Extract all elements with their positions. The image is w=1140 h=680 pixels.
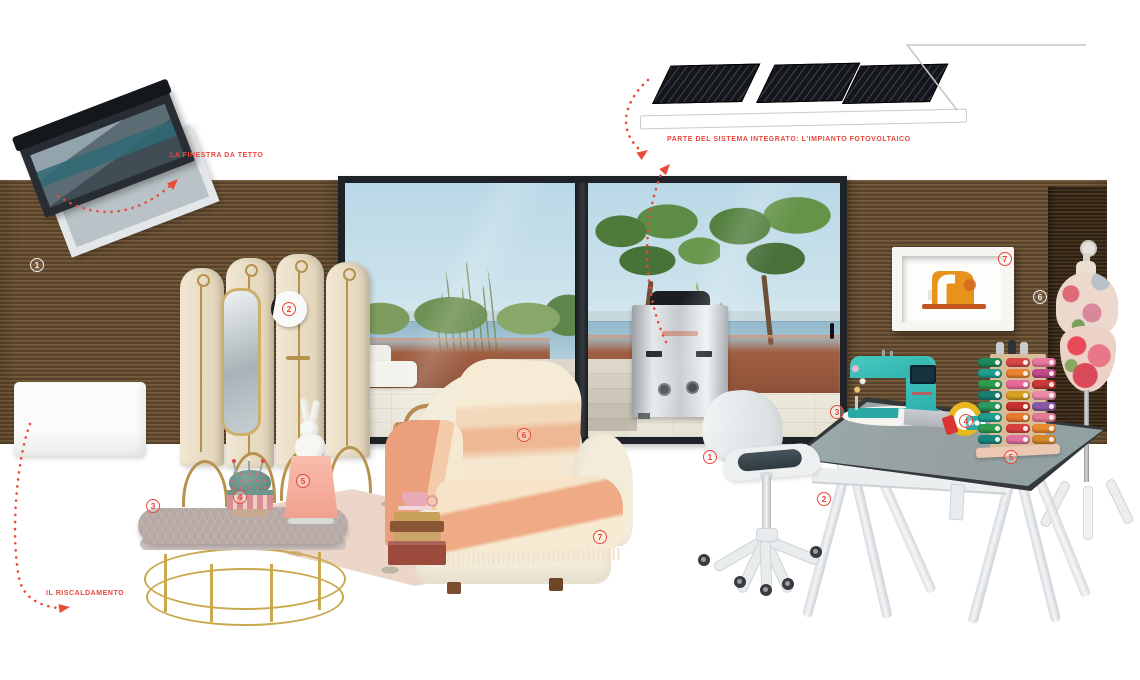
lamp-base [288, 518, 334, 524]
thread-spool [1006, 358, 1030, 367]
chair-column [762, 476, 771, 534]
desk-leg [967, 481, 1014, 625]
table-post [164, 554, 167, 612]
marker-accessories-4: 4 [959, 414, 973, 428]
brass-ring [245, 264, 258, 277]
book [393, 532, 441, 541]
book [390, 521, 444, 532]
saddle-chair[interactable] [690, 388, 840, 598]
marker-rug-7: 7 [593, 530, 607, 544]
storage-box [388, 541, 446, 565]
thread-spool [978, 358, 1002, 367]
heating-label: IL RISCALDAMENTO [46, 590, 124, 597]
machine-screen [910, 365, 936, 384]
photovoltaic-label: PARTE DEL SISTEMA INTEGRATO: L'IMPIANTO … [667, 136, 911, 143]
armchair-leg [549, 578, 563, 591]
marker-thread-rack-5: 5 [1004, 450, 1018, 464]
thread-spool [1006, 435, 1030, 444]
thread-spool [1032, 369, 1056, 378]
thread-spool [1032, 424, 1056, 433]
thread-spool [1006, 369, 1030, 378]
caster-wheel [760, 584, 772, 596]
brass-rod [346, 278, 348, 446]
table-post [270, 564, 273, 622]
marker-desk-2: 2 [817, 492, 831, 506]
desk-center-support [949, 484, 965, 521]
thread-spool [978, 402, 1002, 411]
pincushion [222, 462, 280, 520]
framed-sewing-machine-art [892, 247, 1014, 331]
pin-head [261, 459, 265, 463]
thread-spool [978, 369, 1002, 378]
brass-ring [197, 274, 210, 287]
thread-spool-rack [976, 342, 1060, 458]
vintage-sewing-machine-icon [914, 263, 994, 315]
thread-spool [1032, 391, 1056, 400]
caster-wheel [782, 578, 794, 590]
chair-base-hub [756, 528, 778, 542]
marker-sewing-machine-3: 3 [830, 405, 844, 419]
thread-spools [976, 342, 1060, 452]
marker-lamp-5: 5 [296, 474, 310, 488]
thread-spool [1032, 380, 1056, 389]
rabbit-lamp [278, 398, 344, 526]
thread-spool [1032, 358, 1056, 367]
thread-spool [1032, 435, 1056, 444]
door-handle[interactable] [830, 323, 834, 339]
thread-spool [1032, 402, 1056, 411]
saucer [398, 506, 432, 510]
marker-screen-2: 2 [282, 302, 296, 316]
moodboard-canvas: LA FINESTRA DA TETTO PARTE DEL SISTEMA I… [0, 0, 1140, 680]
thread-spool [1006, 380, 1030, 389]
pincushion-base [232, 509, 268, 517]
needle-bar [855, 396, 858, 410]
machine-head [850, 356, 868, 398]
pin-head [232, 459, 236, 463]
thread-spool [1006, 424, 1030, 433]
table-post [318, 552, 321, 610]
marker-frame-art-7: 7 [998, 252, 1012, 266]
marker-armchair-6: 6 [517, 428, 531, 442]
thread-spool [978, 413, 1002, 422]
thread-spool [978, 424, 1002, 433]
book [394, 512, 440, 521]
armchair-leg [447, 582, 461, 594]
table-post [210, 564, 213, 622]
marker-pincushion-4: 4 [233, 490, 247, 504]
thread-spool [978, 380, 1002, 389]
brass-ring [295, 260, 308, 273]
solar-panel [842, 64, 948, 104]
caster-wheel [698, 554, 710, 566]
brass-hook [286, 356, 310, 360]
solar-mounting-rail [640, 109, 967, 130]
teacup [402, 492, 428, 507]
thread-spool [978, 435, 1002, 444]
thread-spool [1006, 413, 1030, 422]
brass-ring [343, 268, 356, 281]
oval-mirror [221, 288, 261, 436]
radiator [14, 382, 146, 456]
caster-wheel [810, 546, 822, 558]
thread-spool [1006, 391, 1030, 400]
machine-brand-mark [912, 392, 932, 395]
lamp-shade [284, 456, 338, 518]
skylight-label: LA FINESTRA DA TETTO [170, 152, 263, 159]
marker-chair-1: 1 [703, 450, 717, 464]
chair-seat-pad [737, 448, 802, 472]
chair-base-leg [760, 539, 773, 589]
mannequin-hips [1060, 326, 1116, 392]
screen-panel [180, 268, 224, 466]
table-frame-ring [146, 568, 344, 626]
brass-rod [200, 284, 202, 452]
books-and-teacup [386, 490, 448, 568]
thread-spool [1032, 413, 1056, 422]
marker-table-3: 3 [146, 499, 160, 513]
pin-head [247, 457, 251, 461]
marker-wall-panel-6: 6 [1033, 290, 1047, 304]
marker-wall-1: 1 [30, 258, 44, 272]
thread-spool [978, 391, 1002, 400]
solar-panel [652, 64, 760, 104]
caster-wheel [734, 576, 746, 588]
thread-spool [1006, 402, 1030, 411]
